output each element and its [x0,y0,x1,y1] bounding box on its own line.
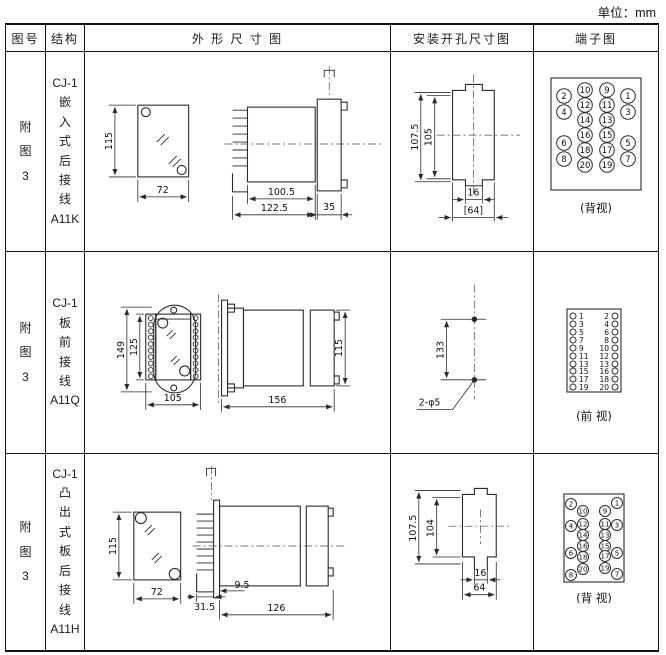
mounting-plate [222,300,228,396]
terminal-circles: 2 1 10 9 4 12 11 3 14 13 16 15 6 18 17 5 [566,498,623,581]
row1-terminal-cell: 2 10 9 1 4 12 11 3 14 13 6 16 15 5 8 18 [534,52,658,252]
row3-structure-label: CJ-1 凸 出 式 板 后 接 线 A11H [46,454,85,650]
svg-text:17: 17 [601,553,610,561]
handle-icon [207,468,216,476]
dim-inner-height: 105 [424,128,435,146]
row1-terminal-diagram: 2 10 9 1 4 12 11 3 14 13 6 16 15 5 8 18 [534,52,658,252]
header-figure: 图号 [6,25,46,52]
dim-outer-height: 107.5 [410,123,421,150]
cutout-outline [462,488,496,569]
terminal-rows: 12 34 56 78 910 1112 1313 1516 1718 1920 [570,312,618,392]
svg-text:19: 19 [601,565,610,573]
panel-plate [214,500,220,598]
svg-text:10: 10 [579,508,588,516]
svg-text:7: 7 [615,571,619,579]
rear-section [310,310,334,386]
terminal-pins [197,514,214,570]
screw-icon [135,513,146,524]
glass-hatch-icon [167,330,180,365]
dim-inner-height: 125 [129,337,140,355]
svg-text:7: 7 [625,155,630,165]
svg-text:11: 11 [601,521,610,529]
svg-text:4: 4 [569,523,574,531]
dim-depth-total: 122.5 [261,202,288,213]
terminal-pins [233,110,248,166]
svg-text:5: 5 [625,139,630,149]
dim-depth: 156 [268,394,286,405]
view-caption: (前 视) [576,409,612,423]
svg-text:12: 12 [580,101,591,111]
row1-outline-drawing: 115 72 100.5 122.5 [85,52,390,252]
datasheet-page: 单位：mm 图号 结构 外 形 尺 寸 图 安装开孔尺寸图 端子图 附 图 3 … [0,0,666,655]
dimension-table: 图号 结构 外 形 尺 寸 图 安装开孔尺寸图 端子图 附 图 3 CJ-1 嵌… [5,23,659,652]
relay-front [156,314,191,380]
row3-outline-drawing: 115 72 31.5 9.5 [85,454,390,650]
svg-text:16: 16 [580,131,591,141]
dim-hole-spacing: 133 [436,341,447,359]
relay-body-side [247,107,315,182]
view-caption: (背视) [580,201,612,215]
row3-outline-cell: 115 72 31.5 9.5 [85,454,391,650]
dim-depth: 126 [267,603,285,614]
dim-side-height: 115 [334,338,345,356]
svg-text:3: 3 [625,108,630,118]
svg-text:19: 19 [579,383,589,392]
dim-inner-height: 104 [426,519,437,537]
dim-panel-thickness: 9.5 [235,580,250,591]
screw-icon [169,568,180,579]
svg-text:1: 1 [615,500,619,508]
svg-text:1: 1 [625,92,630,102]
svg-text:17: 17 [602,146,613,156]
svg-text:16: 16 [579,543,588,551]
dim-height: 115 [104,132,115,150]
dim-height: 115 [108,537,119,555]
svg-text:14: 14 [580,116,591,126]
row3-mounting-cell: 107.5 104 16 64 [391,454,534,650]
svg-text:9: 9 [603,508,607,516]
svg-text:14: 14 [579,532,588,540]
svg-text:4: 4 [561,108,566,118]
dim-depth-body: 100.5 [268,186,295,197]
svg-text:19: 19 [602,161,613,171]
row3-mounting-drawing: 107.5 104 16 64 [391,454,533,650]
screw-icon [158,318,168,328]
stud-icon [171,384,177,390]
svg-text:18: 18 [580,146,591,156]
row1-outline-cell: 115 72 100.5 122.5 [85,52,391,252]
svg-text:11: 11 [602,101,613,111]
front-flange [317,99,341,191]
dim-span: 64 [473,583,485,594]
row2-figure-label: 附 图 3 [6,252,46,454]
header-structure: 结构 [46,25,85,52]
svg-text:13: 13 [601,532,610,540]
front-panel [134,512,181,580]
dim-width: 72 [157,184,169,195]
row2-terminal-cell: 12 34 56 78 910 1112 1313 1516 1718 1920… [534,252,658,454]
unit-label: 单位：mm [598,2,656,21]
row2-outline-cell: 149 125 105 156 115 [85,252,391,454]
row1-mounting-drawing: 107.5 105 16 [64] [391,52,533,252]
svg-text:13: 13 [602,116,613,126]
dim-notch-width: 16 [474,568,486,579]
dim-notch-width: 16 [467,187,479,198]
row2-mounting-cell: 133 2-φ5 [391,252,534,454]
svg-text:10: 10 [580,86,591,96]
svg-text:8: 8 [569,572,573,580]
front-panel [138,105,189,177]
dim-outer-height: 149 [116,340,127,358]
svg-text:20: 20 [599,383,609,392]
svg-text:3: 3 [615,522,619,530]
row2-mounting-drawing: 133 2-φ5 [391,252,533,454]
row1-structure-label: CJ-1 嵌 入 式 后 接 线 A11K [46,52,85,252]
row3-figure-label: 附 图 3 [6,454,46,650]
row1-figure-label: 附 图 3 [6,52,46,252]
dim-width: 105 [164,392,182,403]
screw-icon [141,107,150,116]
dim-width: 72 [151,587,163,598]
header-outline: 外 形 尺 寸 图 [85,25,391,52]
svg-text:6: 6 [561,139,566,149]
dim-flange: 35 [323,201,335,212]
relay-body-side [243,310,303,386]
header-mounting: 安装开孔尺寸图 [391,25,534,52]
stud-icon [171,307,177,313]
row2-terminal-diagram: 12 34 56 78 910 1112 1313 1516 1718 1920… [534,252,658,454]
row3-terminal-diagram: 2 1 10 9 4 12 11 3 14 13 16 15 6 18 17 5 [534,454,658,650]
row2-outline-drawing: 149 125 105 156 115 [85,252,390,454]
dim-span: [64] [464,205,483,216]
screw-icon [180,365,190,375]
svg-text:5: 5 [615,550,619,558]
screw-icon [177,165,186,174]
svg-text:6: 6 [569,550,574,558]
glass-hatch-icon [157,134,181,167]
dim-pin-depth: 31.5 [194,602,215,613]
header-terminal: 端子图 [534,25,658,52]
dim-outer-height: 107.5 [408,515,419,542]
svg-text:15: 15 [601,543,610,551]
row1-mounting-cell: 107.5 105 16 [64] [391,52,534,252]
glass-hatch-icon [145,525,162,563]
row3-terminal-cell: 2 1 10 9 4 12 11 3 14 13 16 15 6 18 17 5 [534,454,658,650]
svg-text:8: 8 [561,155,566,165]
row2-structure-label: CJ-1 板 前 接 线 A11Q [46,252,85,454]
view-caption: (背 视) [576,591,612,605]
svg-text:12: 12 [579,521,588,529]
svg-text:2: 2 [561,92,566,102]
terminal-circles: 2 10 9 1 4 12 11 3 14 13 6 16 15 5 8 18 [557,82,636,172]
svg-text:20: 20 [579,566,588,574]
svg-text:18: 18 [579,554,588,562]
svg-text:20: 20 [580,161,591,171]
svg-text:9: 9 [604,86,609,96]
svg-text:15: 15 [602,131,613,141]
svg-text:2: 2 [569,501,573,509]
holes-label: 2-φ5 [419,397,441,408]
